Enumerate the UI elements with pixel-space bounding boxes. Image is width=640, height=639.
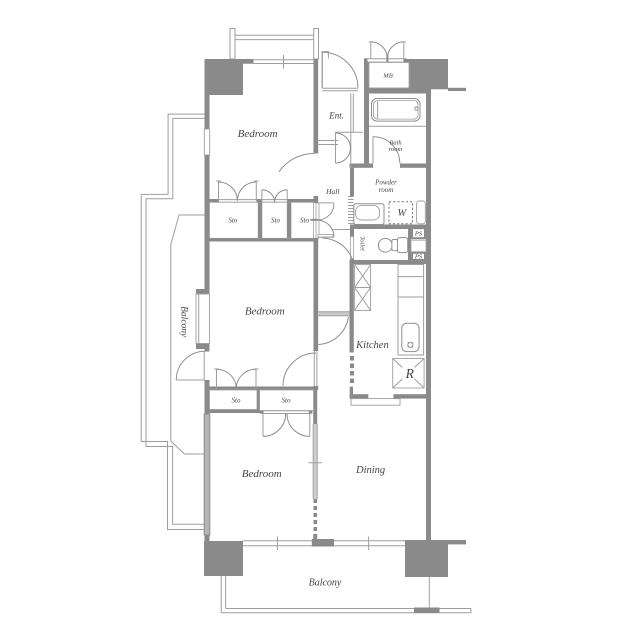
svg-text:Sto: Sto: [300, 217, 309, 225]
svg-text:Sto: Sto: [282, 397, 291, 405]
svg-text:room: room: [389, 146, 403, 153]
svg-text:R: R: [405, 366, 415, 381]
svg-text:W: W: [398, 208, 408, 219]
svg-text:Balcony: Balcony: [179, 306, 189, 338]
svg-text:MB: MB: [382, 73, 392, 80]
svg-text:Toilet: Toilet: [359, 236, 366, 251]
svg-text:Dining: Dining: [355, 465, 385, 476]
svg-text:PS: PS: [414, 254, 423, 261]
svg-text:room: room: [379, 186, 394, 194]
svg-text:Bedroom: Bedroom: [245, 306, 285, 318]
svg-text:Ent.: Ent.: [328, 111, 344, 121]
svg-text:Balcony: Balcony: [309, 578, 342, 589]
svg-text:PS: PS: [414, 231, 423, 238]
svg-text:Sto: Sto: [271, 217, 280, 225]
svg-text:Hall: Hall: [325, 187, 339, 196]
svg-text:Kitchen: Kitchen: [355, 340, 389, 351]
svg-text:Bedroom: Bedroom: [238, 128, 278, 140]
svg-text:Sto: Sto: [232, 397, 241, 405]
svg-text:Bedroom: Bedroom: [242, 468, 282, 480]
svg-text:Sto: Sto: [228, 217, 237, 225]
